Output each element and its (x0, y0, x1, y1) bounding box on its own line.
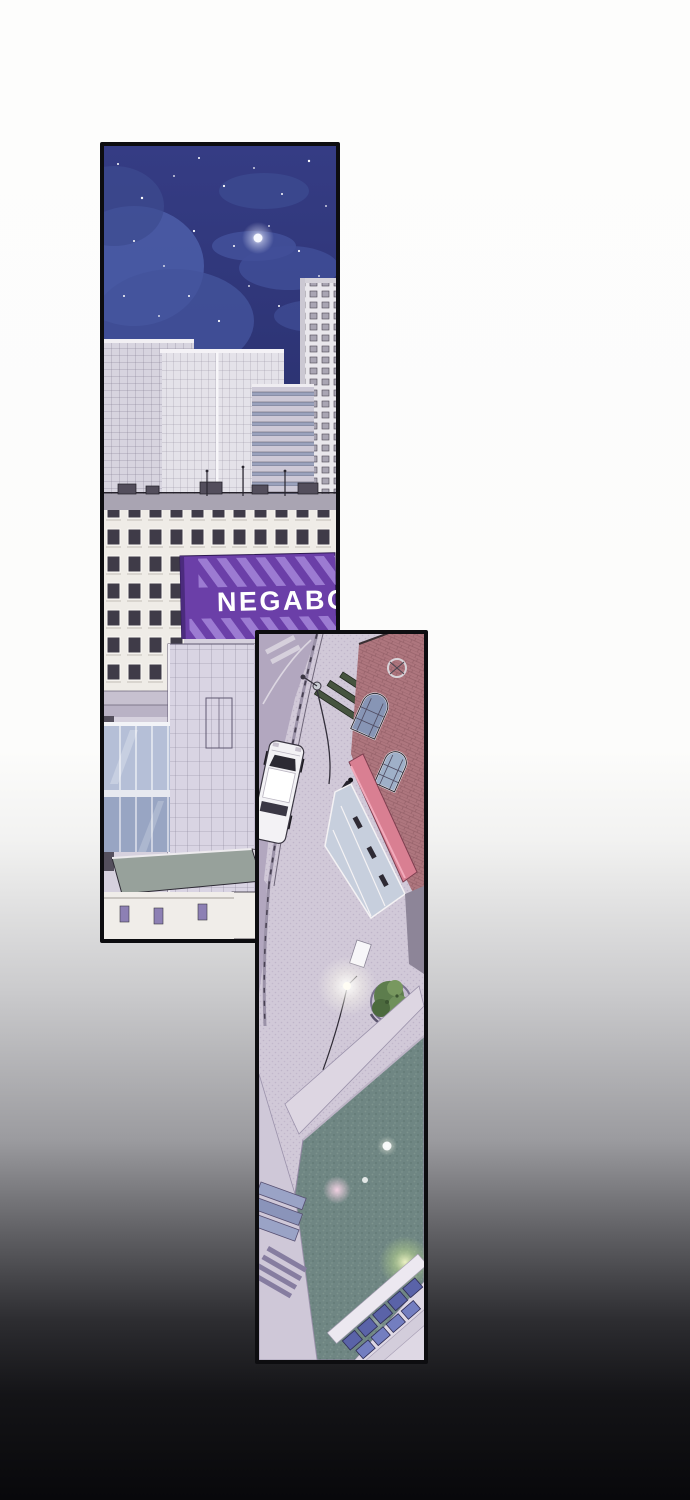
page-background: { "scene": { "type": "webtoon-comic-page… (0, 0, 690, 1500)
comic-panel-street-view (255, 630, 428, 1364)
glass-curtain-wall (104, 722, 170, 852)
street-aerial-illustration (259, 634, 424, 1360)
sign-stripes-top (198, 556, 336, 588)
moon (242, 222, 274, 254)
sign-text: NEGABO (217, 584, 336, 617)
